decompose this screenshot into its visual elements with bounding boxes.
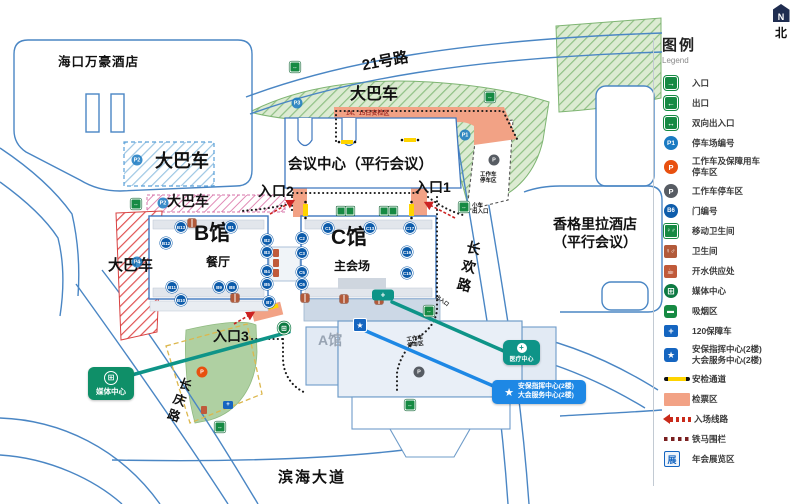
medical-center-callout-label: 医疗中心 (509, 354, 533, 363)
legend-item-label: 安保指挥中心(2楼) (692, 344, 762, 355)
water-supply-icon (201, 406, 207, 414)
legend-item-label: 120保障车 (692, 326, 732, 337)
door-num-icon: B6 (664, 204, 678, 218)
door-badge: C3 (296, 247, 308, 259)
bus-area-green-label: 大巴车 (350, 86, 398, 104)
toilet-icon (188, 219, 196, 227)
legend-item: ⊞ 媒体中心 (662, 281, 797, 301)
legend-item: 入场线路 (662, 409, 797, 429)
legend-item-label: 门编号 (692, 206, 718, 217)
ticket-area-icon (664, 393, 690, 406)
bus-area-blue-label: 大巴车 (155, 152, 209, 172)
door-badge: C15 (401, 267, 413, 279)
water-icon: ☕ (664, 265, 677, 278)
hall-c-mainvenue-label: 主会场 (334, 260, 370, 273)
legend-divider (653, 38, 654, 486)
legend-item-label: 工作车停车区 (692, 186, 743, 197)
star-icon: ★ (504, 386, 514, 399)
media-icon: ⊞ (104, 371, 118, 385)
marriott-hotel-label: 海口万豪酒店 (58, 56, 139, 70)
gate-icon: ↔ (405, 400, 416, 411)
parking-badge: P3 (292, 98, 303, 109)
expo-icon: 展 (664, 451, 680, 467)
medical-point-icon: + (372, 290, 394, 301)
toilet-icon: ♀♂ (664, 245, 677, 258)
parking-badge: P2 (132, 155, 143, 166)
legend-item: P 工作车及保障用车 停车区 (662, 153, 797, 181)
legend-item-label: 年会展览区 (692, 454, 735, 465)
legend-item: B6 门编号 (662, 201, 797, 221)
small-car-gate-label: 小车 出入口 (472, 203, 489, 215)
legend-item: ♀♂ 卫生间 (662, 241, 797, 261)
legend-item-label: 安检通道 (692, 374, 726, 385)
work-parking-br-label: 工作车 停车区 (406, 335, 424, 349)
legend-item-label: 停车场编号 (692, 138, 735, 149)
parking-badge: P (489, 155, 500, 166)
hall-b-restaurant-label: 餐厅 (206, 256, 230, 269)
legend-item: 检票区 (662, 389, 797, 409)
north-arrow-icon: N (773, 4, 790, 22)
legend-item: + 120保障车 (662, 321, 797, 341)
legend-item: → 入口 (662, 73, 797, 93)
security-line-icon (664, 377, 690, 381)
legend-item-label: 卫生间 (692, 246, 718, 257)
gate-icon: ↔ (290, 62, 301, 73)
hall-c-label: C馆 (331, 226, 367, 249)
in-icon: → (664, 76, 678, 90)
legend-item-label: 移动卫生间 (692, 226, 735, 237)
legend-item: ▬ 吸烟区 (662, 301, 797, 321)
legend-item-label2: 大会服务中心(2楼) (692, 355, 762, 366)
security-check-1415-label: 14、15日安检区 (346, 111, 389, 118)
door-badge: B2 (261, 234, 273, 246)
security-center-icon: ★ (353, 318, 367, 332)
mobile-toilet-icon (346, 207, 355, 216)
ambulance-icon: + (664, 325, 678, 337)
legend-item-label: 出口 (692, 98, 709, 109)
legend-item-label: 检票区 (692, 394, 718, 405)
legend-item-label: 入场线路 (694, 414, 728, 425)
door-badge: B9 (213, 281, 225, 293)
door-badge: C13 (364, 222, 376, 234)
smoking-icon: ▬ (664, 305, 677, 318)
legend-item: 展 年会展览区 (662, 449, 797, 469)
entrance-3-label: 入口3 (213, 329, 249, 344)
door-badge: C1 (322, 222, 334, 234)
media-center-icon: ⊞ (278, 322, 291, 335)
parking-badge: P (414, 367, 425, 378)
ambulance-icon: + (223, 401, 233, 409)
mobile-toilet-icon: ♀♂ (664, 224, 678, 238)
media-center-callout: ⊞ 媒体中心 (88, 367, 134, 400)
security-callout-line2: 大会服务中心(2楼) (518, 392, 574, 401)
door-badge: B11 (166, 281, 178, 293)
parking-badge: P1 (460, 130, 471, 141)
gate-icon: ↔ (215, 422, 226, 433)
water-supply-icon (273, 259, 279, 267)
binhai-avenue-label: 滨海大道 (278, 470, 346, 487)
gate-icon: ↔ (424, 306, 435, 317)
parking-badge: P2 (158, 198, 169, 209)
toilet-icon (340, 295, 348, 303)
both-icon: ↔ (664, 116, 678, 130)
medical-center-callout: + 医疗中心 (503, 340, 540, 365)
door-badge: C16 (401, 246, 413, 258)
mobile-toilet-icon (337, 207, 346, 216)
legend-item-label2: 停车区 (692, 167, 760, 178)
gate-icon: ↔ (131, 199, 142, 210)
star-icon: ★ (664, 348, 678, 362)
legend-item: ☕ 开水供应处 (662, 261, 797, 281)
entrance-2-label: 入口2 (258, 184, 294, 199)
legend-item: ★ 安保指挥中心(2楼) 大会服务中心(2楼) (662, 341, 797, 369)
gate-icon: ↔ (485, 92, 496, 103)
door-badge: B3 (261, 246, 273, 258)
door-badge: C17 (404, 222, 416, 234)
legend-item: P 工作车停车区 (662, 181, 797, 201)
security-center-callout: ★ 安保指挥中心(2楼) 大会服务中心(2楼) (492, 380, 586, 404)
venue-map: 海口万豪酒店 大巴车 21号路 大巴车 14、15日安检区 会议中心（平行会议）… (0, 0, 800, 504)
water-supply-icon (273, 269, 279, 277)
p-orange-icon: P (664, 160, 678, 174)
medical-cross-icon: + (517, 343, 527, 353)
legend-item-label: 双向出入口 (692, 118, 735, 129)
bus-area-red-label: 大巴车 (108, 258, 153, 275)
legend-item: ♀♂ 移动卫生间 (662, 221, 797, 241)
out-icon: ← (664, 96, 678, 110)
gate-icon: ↔ (459, 202, 470, 213)
door-badge: B12 (160, 237, 172, 249)
legend-item-label: 入口 (692, 78, 709, 89)
legend-item-label: 媒体中心 (692, 286, 726, 297)
door-badge: B10 (175, 294, 187, 306)
p-blue-icon: P1 (664, 136, 678, 150)
legend-item: ↔ 双向出入口 (662, 113, 797, 133)
toilet-icon (231, 294, 239, 302)
legend-item: 铁马围栏 (662, 429, 797, 449)
legend-item-label: 工作车及保障用车 (692, 156, 760, 167)
hall-a-label: A馆 (318, 333, 342, 348)
entrance-1-label: 入口1 (415, 180, 451, 195)
legend-subtitle: Legend (662, 56, 797, 65)
legend-panel: 图例 Legend → 入口 ← 出口 ↔ (662, 34, 797, 469)
parking-badge: P4 (132, 257, 143, 268)
media-icon: ⊞ (664, 284, 678, 298)
work-parking-tr-label: 工作车 停车区 (480, 172, 497, 184)
conference-center-label: 会议中心（平行会议） (288, 158, 433, 174)
mobile-toilet-icon (380, 207, 389, 216)
parking-badge: P (197, 367, 208, 378)
legend-item: P1 停车场编号 (662, 133, 797, 153)
door-badge: B1 (225, 221, 237, 233)
door-badge: B4 (261, 265, 273, 277)
p-gray-icon: P (664, 184, 678, 198)
security-callout-line1: 安保指挥中心(2楼) (518, 383, 574, 392)
door-badge: C6 (296, 278, 308, 290)
door-badge: B5 (261, 278, 273, 290)
legend-item: 安检通道 (662, 369, 797, 389)
shangrila-hotel-label: 香格里拉酒店 （平行会议） (528, 216, 662, 251)
door-badge: B13 (175, 221, 187, 233)
legend-item-label: 开水供应处 (692, 266, 735, 277)
media-center-callout-label: 媒体中心 (96, 386, 126, 397)
water-supply-icon (273, 249, 279, 257)
legend-list: → 入口 ← 出口 ↔ 双向出入口 (662, 73, 797, 469)
legend-item-label: 铁马围栏 (692, 434, 726, 445)
barrier-icon (664, 437, 690, 441)
mobile-toilet-icon (389, 207, 398, 216)
legend-title: 图例 (662, 34, 797, 55)
door-badge: B7 (263, 296, 275, 308)
bus-area-pink-label: 大巴车 (167, 194, 209, 209)
route-icon (670, 417, 694, 422)
legend-item: ← 出口 (662, 93, 797, 113)
legend-item-label: 吸烟区 (692, 306, 718, 317)
door-badge: B8 (226, 281, 238, 293)
door-badge: C5 (296, 266, 308, 278)
door-badge: C2 (296, 232, 308, 244)
toilet-icon (301, 294, 309, 302)
